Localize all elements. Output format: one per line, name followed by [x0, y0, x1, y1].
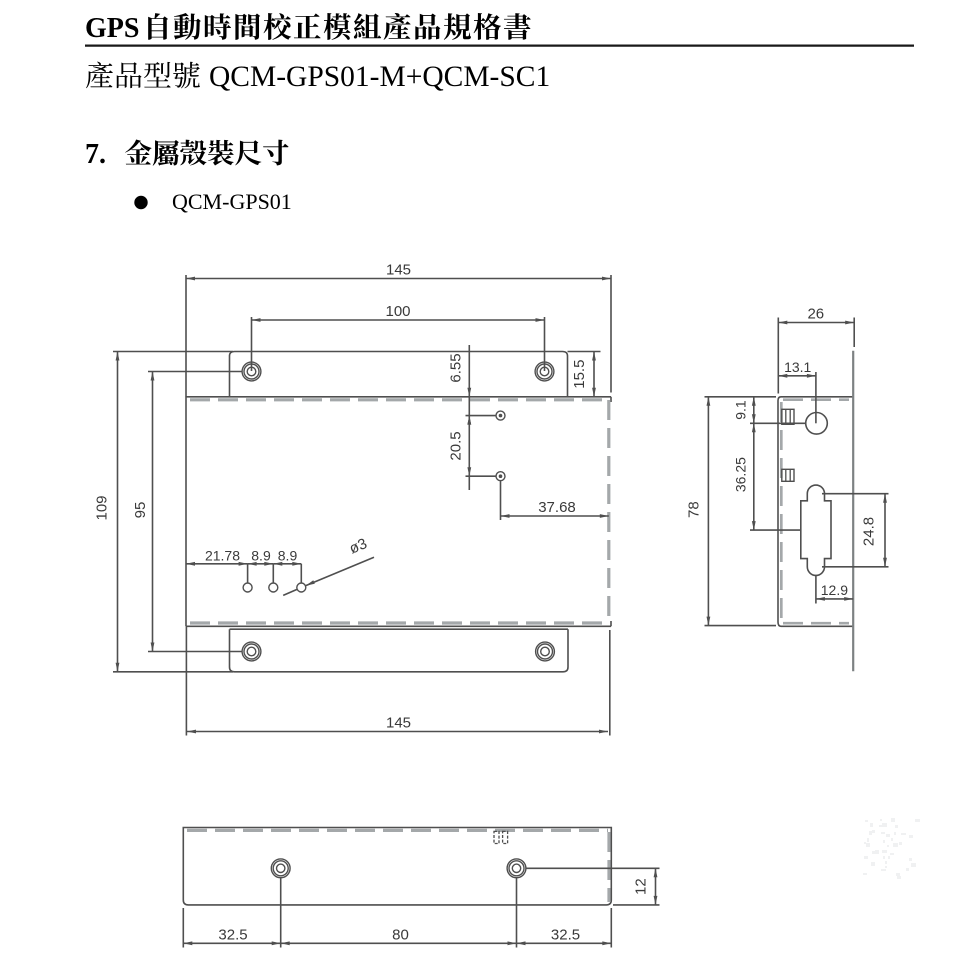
svg-text:24.8: 24.8 [861, 517, 878, 546]
svg-text:145: 145 [386, 262, 411, 279]
svg-text:ø3: ø3 [347, 535, 370, 557]
svg-text:20.5: 20.5 [448, 431, 465, 460]
svg-text:109: 109 [94, 495, 111, 520]
svg-text:100: 100 [385, 303, 410, 320]
svg-text:GPS: GPS [85, 13, 139, 44]
svg-text:36.25: 36.25 [733, 457, 749, 492]
svg-text:26: 26 [807, 306, 824, 323]
svg-text:9.1: 9.1 [733, 400, 749, 420]
svg-text:8.9: 8.9 [251, 547, 271, 563]
svg-text:8.9: 8.9 [278, 547, 298, 563]
svg-text:32.5: 32.5 [551, 926, 580, 943]
svg-text:78: 78 [686, 501, 703, 518]
svg-text:7.: 7. [85, 139, 106, 170]
svg-text:80: 80 [392, 926, 409, 943]
svg-text:12: 12 [633, 878, 650, 895]
svg-text:13.1: 13.1 [784, 359, 811, 375]
svg-text:21.78: 21.78 [205, 547, 240, 563]
svg-text:15.5: 15.5 [571, 360, 588, 389]
svg-text:6.55: 6.55 [448, 353, 465, 382]
svg-text:37.68: 37.68 [538, 499, 576, 516]
svg-text:QCM-GPS01: QCM-GPS01 [172, 189, 292, 214]
svg-text:QCM-GPS01-M+QCM-SC1: QCM-GPS01-M+QCM-SC1 [209, 61, 550, 93]
svg-text:12.9: 12.9 [821, 582, 848, 598]
svg-text:145: 145 [386, 715, 411, 732]
svg-text:95: 95 [132, 502, 149, 519]
svg-text:32.5: 32.5 [218, 926, 247, 943]
